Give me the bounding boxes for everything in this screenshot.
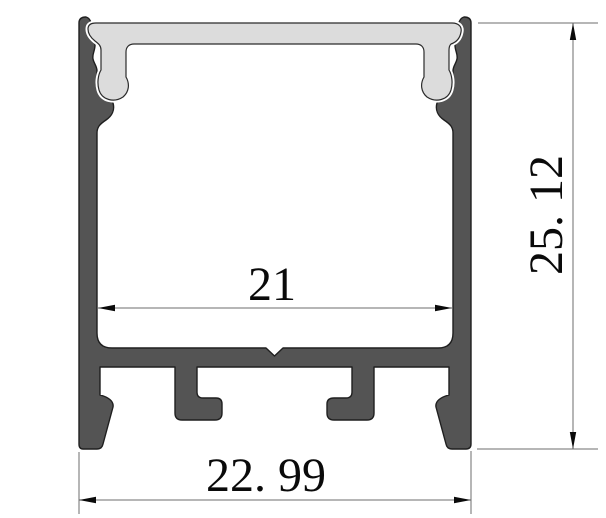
inner-width-value: 21	[248, 258, 296, 311]
aluminum-profile-body	[79, 17, 471, 449]
outer-width-arrow-right	[454, 497, 471, 503]
profile-body-shape	[79, 17, 471, 449]
dimension-overall-height: 25. 12	[477, 23, 598, 449]
led-profile-cross-section-drawing: 21 22. 99 25. 12	[0, 0, 606, 518]
diffuser-cover	[88, 23, 461, 100]
overall-height-value: 25. 12	[520, 155, 573, 275]
technical-drawing-canvas: 21 22. 99 25. 12	[0, 0, 606, 518]
inner-width-arrow-right	[435, 305, 452, 311]
dimension-outer-width: 22. 99	[79, 449, 471, 514]
inner-width-arrow-left	[98, 305, 115, 311]
diffuser-cover-shape	[88, 23, 461, 100]
dimension-inner-width: 21	[98, 258, 452, 311]
outer-width-value: 22. 99	[206, 449, 326, 502]
height-arrow-bottom	[570, 432, 576, 449]
outer-width-arrow-left	[79, 497, 96, 503]
height-arrow-top	[570, 23, 576, 40]
